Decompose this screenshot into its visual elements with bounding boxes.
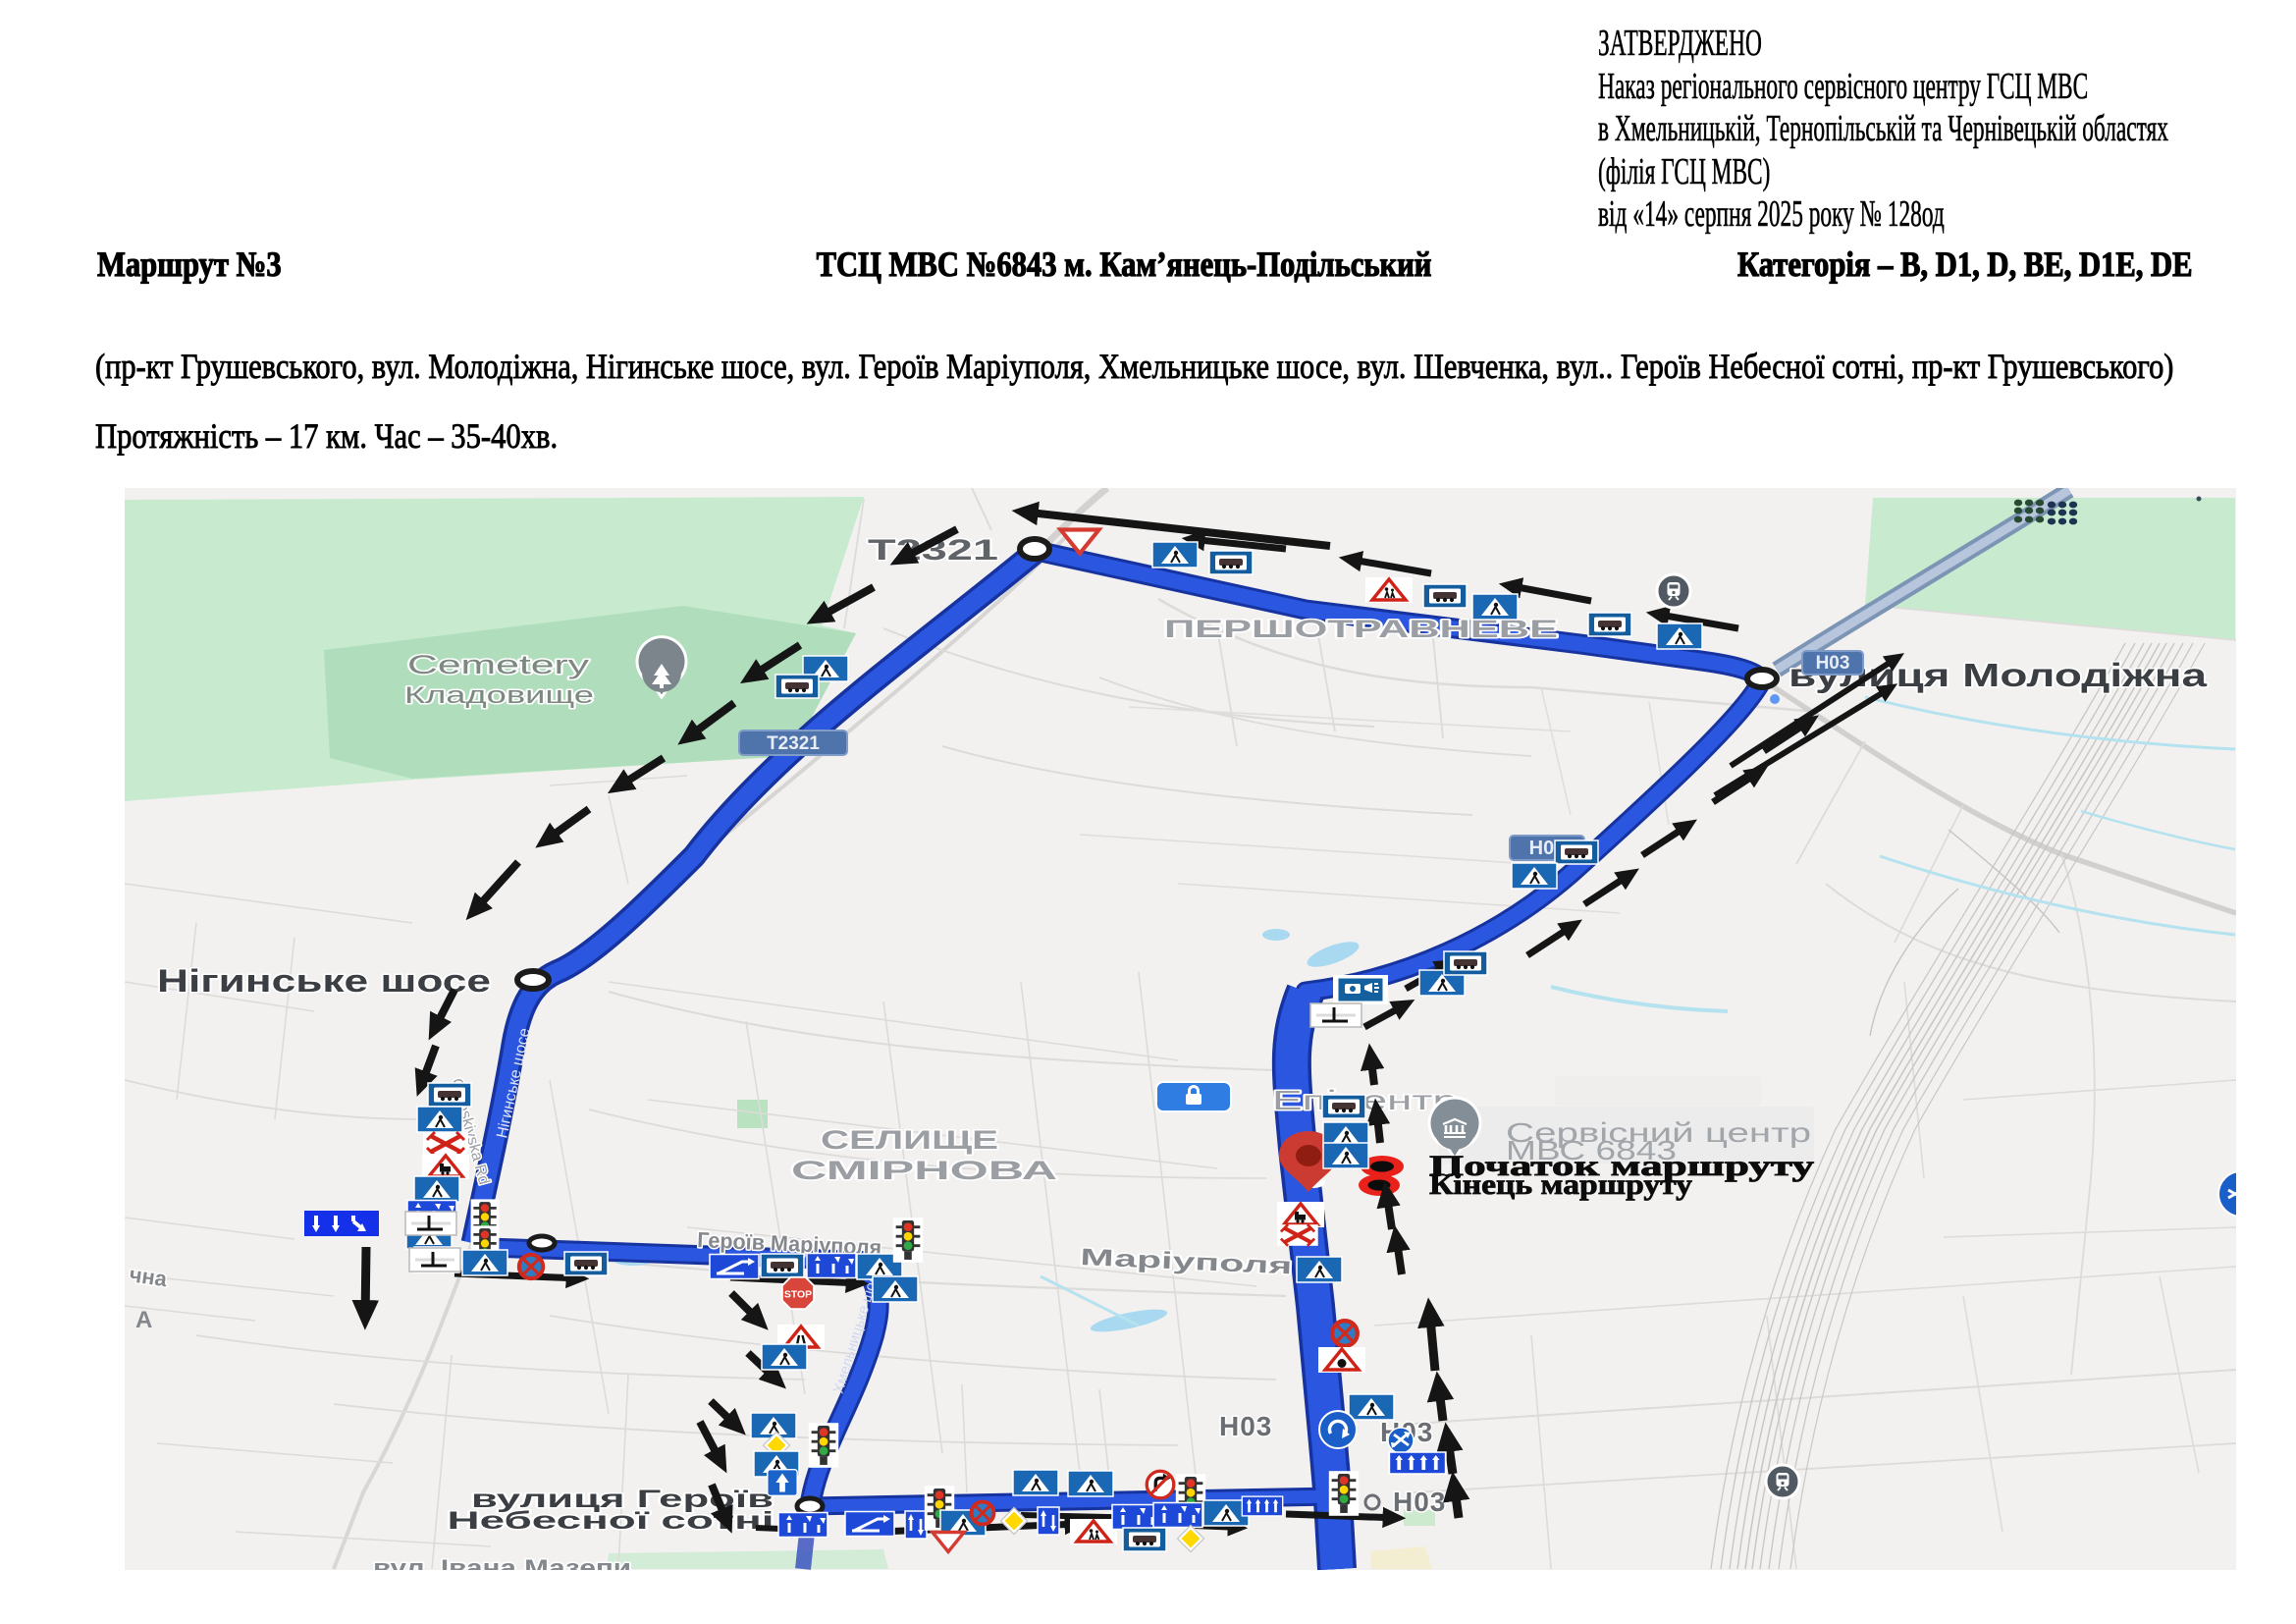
svg-text:Кінець маршруту: Кінець маршруту: [1429, 1168, 1692, 1201]
svg-text:Н03: Н03: [1816, 653, 1850, 674]
svg-text:Н03: Н03: [1219, 1411, 1272, 1441]
svg-text:СМІРНОВА: СМІРНОВА: [791, 1156, 1057, 1185]
svg-text:СЕЛИЩЕ: СЕЛИЩЕ: [821, 1125, 998, 1155]
svg-text:А: А: [135, 1307, 152, 1333]
svg-text:Н03: Н03: [1393, 1487, 1446, 1517]
svg-text:Кладовище: Кладовище: [404, 682, 594, 709]
svg-text:вул. Івана Мазепи: вул. Івана Мазепи: [373, 1555, 631, 1570]
svg-text:Нігинське шосе: Нігинське шосе: [157, 963, 491, 999]
svg-text:Т2321: Т2321: [767, 733, 820, 754]
svg-text:Cemetery: Cemetery: [407, 650, 590, 679]
